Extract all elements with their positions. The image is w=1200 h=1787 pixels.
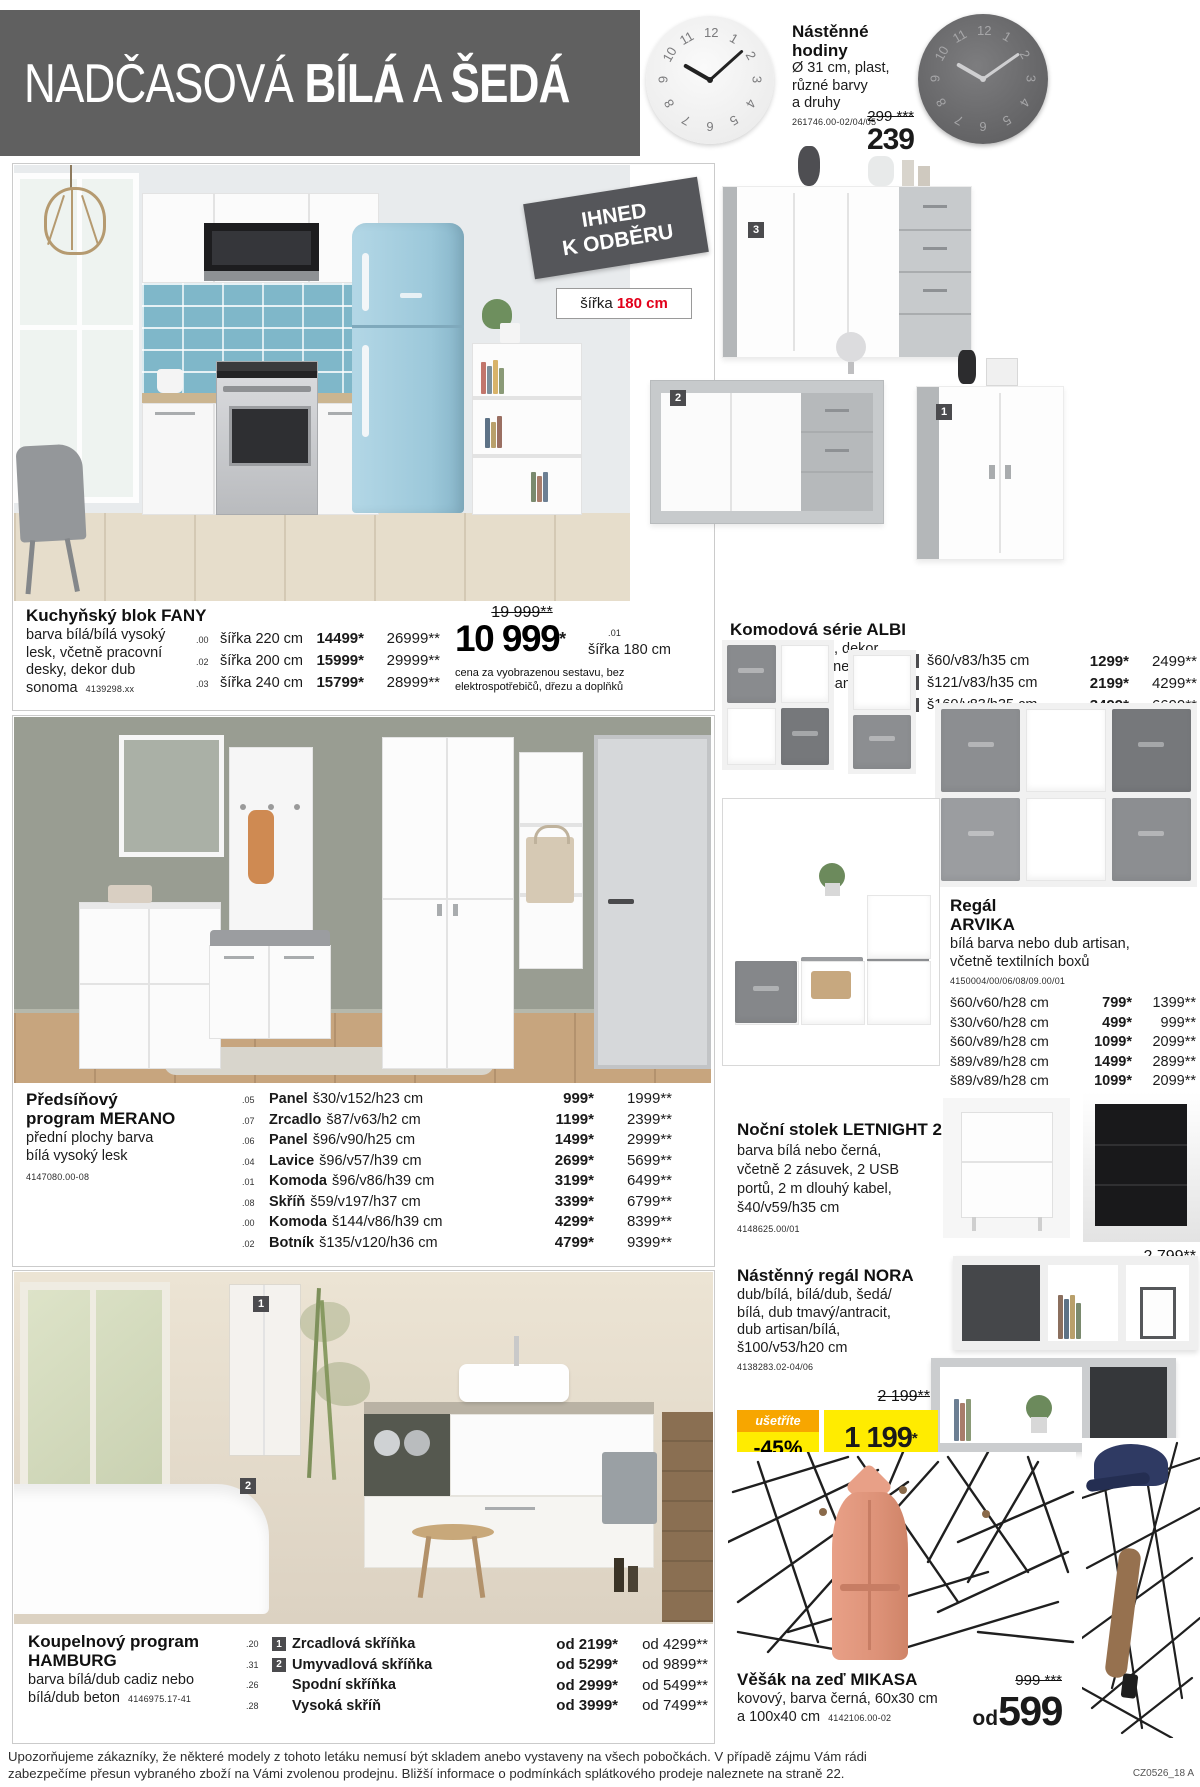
mikasa-old-price: 999 *** xyxy=(900,1672,1062,1689)
table-row: .07 Zrcadlo š87/v63/h2 cm 1199* 2399** xyxy=(242,1111,672,1132)
row-index: .01 xyxy=(242,1177,269,1187)
lamp-cord xyxy=(70,165,72,189)
floor xyxy=(14,513,630,601)
dark-clock-image: 123456789101112 xyxy=(918,14,1048,144)
row-item: Umyvadlová skříňka xyxy=(292,1657,538,1673)
fabric-box xyxy=(1112,798,1191,881)
wood-shelf-panel xyxy=(662,1412,713,1622)
built-in-oven xyxy=(204,223,319,281)
table-row: .20 1 Zrcadlová skříňka od 2199* od 4299… xyxy=(246,1634,708,1655)
mikasa-photo xyxy=(728,1452,1076,1664)
table-row: .04 Lavice š96/v57/h39 cm 2699* 5699** xyxy=(242,1152,672,1173)
towel xyxy=(602,1452,657,1524)
kitchen-note-2: elektrospotřebičů, dřezu a doplňků xyxy=(455,680,705,694)
row-index: .05 xyxy=(242,1095,269,1105)
clock-numeral: 8 xyxy=(659,94,678,112)
hamburg-desc-2: bílá/dub beton 4146975.17-41 xyxy=(28,1690,194,1709)
mikasa-side-photo xyxy=(1082,1438,1200,1738)
row-ref-price: 4299** xyxy=(1129,675,1197,692)
title-word-4: ŠEDÁ xyxy=(451,52,570,114)
mikasa-price-block: 999 *** od599 xyxy=(900,1672,1062,1732)
clock-numeral: 1 xyxy=(725,29,743,48)
nora-name: Nástěnný regál NORA xyxy=(737,1266,914,1285)
clock-numeral: 7 xyxy=(677,111,695,130)
letnight-desc-2: včetně 2 zásuvek, 2 USB xyxy=(737,1161,899,1180)
nora-desc-1: dub/bílá, bílá/dub, šedá/ xyxy=(737,1287,892,1305)
row-item: Spodní skříňka xyxy=(292,1677,538,1693)
table-row: .02 Botník š135/v120/h36 cm 4799* 9399** xyxy=(242,1234,672,1255)
arvika-desc-1: bílá barva nebo dub artisan, xyxy=(950,936,1130,954)
arvika-shelf-a-image xyxy=(722,640,834,770)
price-star: * xyxy=(559,629,566,649)
hamburg-desc-1: barva bílá/dub cadiz nebo xyxy=(28,1672,194,1690)
row-index: .31 xyxy=(246,1660,272,1670)
towels xyxy=(108,885,152,903)
row-ref-price: od 7499** xyxy=(618,1697,708,1714)
row-index: .20 xyxy=(246,1639,272,1649)
table-row: š60/v60/h28 cm 799* 1399** xyxy=(950,994,1196,1014)
kitchen-table: .00 šířka 220 cm 14499* 26999** .02 šířk… xyxy=(196,630,440,696)
row-price: 15799* xyxy=(304,674,364,691)
merano-desc-2: bílá vysoký lesk xyxy=(26,1148,153,1166)
fabric-box xyxy=(727,645,776,703)
box-decor xyxy=(986,358,1018,386)
hamburg-code: 4146975.17-41 xyxy=(128,1694,191,1704)
row-index: .06 xyxy=(242,1136,269,1146)
row-item: Lavice xyxy=(269,1153,314,1169)
row-price: 2199* xyxy=(1073,675,1129,692)
stool-top xyxy=(412,1524,494,1540)
fabric-box xyxy=(853,715,911,770)
row-price: od 2999* xyxy=(538,1677,618,1694)
row-ref-price: 28999** xyxy=(364,674,440,691)
open-rack xyxy=(519,752,583,969)
table-row: .31 2 Umyvadlová skříňka od 5299* od 989… xyxy=(246,1655,708,1676)
books xyxy=(485,416,503,453)
clock-numeral: 7 xyxy=(950,111,968,130)
footer-disclaimer: Upozorňujeme zákazníky, že některé model… xyxy=(8,1748,1118,1782)
table-row: š30/v60/h28 cm 499* 999** xyxy=(950,1014,1196,1034)
clock-numeral: 3 xyxy=(750,74,765,86)
nora-desc: dub/bílá, bílá/dub, šedá/ bílá, dub tmav… xyxy=(737,1287,892,1357)
row-index: .07 xyxy=(242,1116,269,1126)
nora-old-price: 2 199** xyxy=(770,1388,930,1406)
table-row: .03 šířka 240 cm 15799* 28999** xyxy=(196,674,440,696)
shoe-cabinet xyxy=(79,902,221,1069)
arvika-desc: bílá barva nebo dub artisan, včetně text… xyxy=(950,936,1130,971)
row-dimension: š60/v89/h28 cm xyxy=(950,1033,1080,1049)
clock-center xyxy=(707,77,713,83)
kitchen-desc-1: barva bílá/bílá vysoký xyxy=(26,627,165,645)
shelf-cell xyxy=(727,708,776,766)
merano-name: Předsíňový program MERANO xyxy=(26,1090,175,1128)
nora-price: 1 199 xyxy=(844,1422,912,1455)
row-ref-price: od 9899** xyxy=(618,1656,708,1673)
kitchen-note-1: cena za vyobrazenou sestavu, bez xyxy=(455,666,705,680)
tote-bag xyxy=(526,837,574,903)
row-price: od 3999* xyxy=(538,1697,618,1714)
jug-decor xyxy=(868,156,894,186)
candle-decor xyxy=(918,166,930,186)
books xyxy=(954,1399,972,1446)
clock-numeral: 12 xyxy=(704,25,716,40)
nora-desc-2: bílá, dub tmavý/antracit, xyxy=(737,1305,892,1323)
nora-shelf-1-image xyxy=(953,1256,1198,1350)
row-ref-price: 9399** xyxy=(594,1234,672,1251)
table-row: 1 š60/v83/h35 cm 1299* 2499** xyxy=(905,650,1197,672)
row-item: Skříň xyxy=(269,1194,305,1210)
row-price: 4299* xyxy=(534,1213,594,1230)
row-index: .02 xyxy=(242,1239,269,1249)
picture-frame xyxy=(1140,1287,1176,1339)
table-row: .06 Panel š96/v90/h25 cm 1499* 2999** xyxy=(242,1131,672,1152)
row-dimension: š96/v90/h25 cm xyxy=(313,1132,534,1148)
merano-name-1: Předsíňový xyxy=(26,1090,175,1109)
kitchen-desc-4-text: sonoma xyxy=(26,680,78,696)
footer-line-2: zabezpečíme přesun vybraného zboží na Vá… xyxy=(8,1765,1118,1782)
title-word-2: BÍLÁ xyxy=(305,52,404,114)
row-item: Zrcadlo xyxy=(269,1112,321,1128)
bamboo-leaves xyxy=(314,1362,370,1406)
row-price: 1099* xyxy=(1080,1034,1132,1050)
books xyxy=(481,360,505,399)
letnight-desc: barva bílá nebo černá, včetně 2 zásuvek,… xyxy=(737,1142,899,1218)
plant-pot xyxy=(500,323,520,343)
footer-page-code: CZ0526_18 A xyxy=(1120,1768,1194,1779)
shelf-cell xyxy=(1026,798,1105,881)
letnight-desc-4: š40/v59/h35 cm xyxy=(737,1199,899,1218)
row-index: .08 xyxy=(242,1198,269,1208)
row-ref-price: 2399** xyxy=(594,1111,672,1128)
row-dimension: š30/v152/h23 cm xyxy=(313,1091,534,1107)
mikasa-name: Věšák na zeď MIKASA xyxy=(737,1670,917,1689)
nora-desc-3: dub artisan/bílá, xyxy=(737,1322,892,1340)
shelf-cell xyxy=(781,645,830,703)
table-row: š60/v89/h28 cm 1099* 2099** xyxy=(950,1033,1196,1053)
row-dimension: š96/v57/h39 cm xyxy=(319,1153,534,1169)
row-item: Zrcadlová skříňka xyxy=(292,1636,538,1652)
row-ref-price: 2999** xyxy=(594,1131,672,1148)
arvika-step-shelf-image xyxy=(722,798,940,1066)
kitchen-price-block: 10 999* xyxy=(455,620,566,657)
fabric-box xyxy=(941,798,1020,881)
door xyxy=(594,735,711,1069)
mirror xyxy=(119,735,224,857)
white-nightstand xyxy=(961,1112,1053,1218)
table-row: .01 Komoda š96/v86/h39 cm 3199* 6499** xyxy=(242,1172,672,1193)
row-index: .02 xyxy=(196,657,220,667)
door-handle xyxy=(608,899,634,904)
fabric-box xyxy=(781,708,830,766)
kitchen-desc-3: desky, dekor dub xyxy=(26,662,165,680)
row-index: .26 xyxy=(246,1680,272,1690)
mikasa-price-prefix: od xyxy=(972,1707,998,1730)
row-ref-price: 26999** xyxy=(364,630,440,647)
shelf-cell xyxy=(867,895,931,959)
clock-numeral: 4 xyxy=(1015,94,1034,112)
lamp-stem xyxy=(848,362,854,374)
merano-table: .05 Panel š30/v152/h23 cm 999* 1999** .0… xyxy=(242,1090,672,1254)
clock-numeral: 11 xyxy=(677,29,695,48)
arvika-name-1: Regál xyxy=(950,896,1015,915)
arvika-shelf-b-image xyxy=(848,650,916,774)
row-ref-price: 2099** xyxy=(1132,1073,1196,1089)
bamboo-leaves xyxy=(300,1302,350,1342)
black-nightstand xyxy=(1095,1104,1187,1226)
roller-tip xyxy=(1121,1673,1139,1699)
arvika-name: Regál ARVIKA xyxy=(950,896,1015,934)
table-row: .00 šířka 220 cm 14499* 26999** xyxy=(196,630,440,652)
row-dimension: š60/v60/h28 cm xyxy=(950,994,1080,1010)
row-dimension: šířka 200 cm xyxy=(220,653,304,669)
nora-desc-4: š100/v53/h20 cm xyxy=(737,1340,892,1358)
row-ref-price: 29999** xyxy=(364,652,440,669)
hamburg-photo xyxy=(14,1272,713,1624)
basket xyxy=(811,971,851,999)
pendant-lamp xyxy=(44,187,106,255)
merano-name-2: program MERANO xyxy=(26,1109,175,1128)
clock-numeral: 11 xyxy=(950,27,968,46)
hamburg-desc-2-text: bílá/dub beton xyxy=(28,1690,120,1706)
row-dimension: šířka 220 cm xyxy=(220,631,304,647)
lamp-decor xyxy=(836,332,866,362)
stove xyxy=(216,361,318,515)
vessel-sink xyxy=(459,1364,569,1402)
tall-wardrobe xyxy=(382,737,514,1069)
table-row: 2 š121/v83/h35 cm 2199* 4299** xyxy=(905,672,1197,694)
mikasa-price: 599 xyxy=(998,1688,1062,1734)
mikasa-code: 4142106.00-02 xyxy=(828,1713,891,1723)
robe xyxy=(832,1492,908,1660)
row-item: Vysoká skříň xyxy=(292,1698,538,1714)
minute-hand xyxy=(709,49,744,81)
row-price: 2699* xyxy=(534,1152,594,1169)
row-price: 1099* xyxy=(1080,1073,1132,1089)
scarf xyxy=(248,810,274,884)
hamburg-name: Koupelnový program HAMBURG xyxy=(28,1632,199,1670)
letnight-desc-1: barva bílá nebo černá, xyxy=(737,1142,899,1161)
width-prefix: šířka xyxy=(580,295,613,312)
window xyxy=(20,1282,170,1517)
mikasa-desc-2-text: a 100x40 cm xyxy=(737,1709,820,1725)
hamburg-table: .20 1 Zrcadlová skříňka od 2199* od 4299… xyxy=(246,1634,708,1716)
merano-code: 4147080.00-08 xyxy=(26,1172,89,1182)
white-clock-image: 123456789101112 xyxy=(646,16,774,144)
clock-numeral: 6 xyxy=(704,119,716,134)
row-ref-price: 8399** xyxy=(594,1213,672,1230)
minute-hand xyxy=(982,53,1020,81)
kettle xyxy=(157,369,183,393)
row-price: 4799* xyxy=(534,1234,594,1251)
faucet xyxy=(514,1336,519,1366)
row-item: Panel xyxy=(269,1132,308,1148)
row-price: 799* xyxy=(1080,995,1132,1011)
kitchen-desc-4: sonoma 4139298.xx xyxy=(26,680,165,699)
row-price: 3199* xyxy=(534,1172,594,1189)
row-index: .04 xyxy=(242,1157,269,1167)
kitchen-desc: barva bílá/bílá vysoký lesk, včetně prac… xyxy=(26,627,165,698)
clock-numeral: 10 xyxy=(932,45,951,63)
item-marker-1: 1 xyxy=(936,404,952,420)
albi-name: Komodová série ALBI xyxy=(730,620,906,639)
table-row: .05 Panel š30/v152/h23 cm 999* 1999** xyxy=(242,1090,672,1111)
title-word-1: NADČASOVÁ xyxy=(24,52,293,114)
width-label: šířka 180 cm xyxy=(556,288,692,319)
row-price: 499* xyxy=(1080,1015,1132,1031)
vase-decor xyxy=(798,146,820,186)
clock-numeral: 1 xyxy=(998,27,1016,46)
fabric-box xyxy=(735,961,797,1023)
clock-numeral: 9 xyxy=(927,73,942,85)
item-marker-2: 2 xyxy=(670,390,686,406)
row-ref-price: 6499** xyxy=(594,1172,672,1189)
bench-cushion xyxy=(210,930,330,946)
merano-desc: přední plochy barva bílá vysoký lesk xyxy=(26,1130,153,1165)
shelf-cell xyxy=(1026,709,1105,792)
row-ref-price: 1399** xyxy=(1132,995,1196,1011)
clock-name: Nástěnné hodiny xyxy=(792,22,917,60)
bottle-decor xyxy=(628,1566,638,1592)
page-title: NADČASOVÁ BÍLÁ A ŠEDÁ xyxy=(0,51,570,115)
row-index: .00 xyxy=(242,1218,269,1228)
clock-numeral: 4 xyxy=(742,94,761,112)
dark-compartment xyxy=(962,1265,1040,1341)
letnight-desc-3: portů, 2 m dlouhý kabel, xyxy=(737,1180,899,1199)
row-dimension: š89/v89/h28 cm xyxy=(950,1053,1080,1069)
row-price: 14499* xyxy=(304,630,364,647)
row-dimension: š59/v197/h37 cm xyxy=(310,1194,534,1210)
plant-pot xyxy=(1031,1417,1047,1433)
clock-numeral: 2 xyxy=(742,47,761,65)
price-star: * xyxy=(912,1430,918,1447)
table-row: .00 Komoda š144/v86/h39 cm 4299* 8399** xyxy=(242,1213,672,1234)
clock-numeral: 12 xyxy=(977,23,989,38)
kitchen-note: cena za vyobrazenou sestavu, bez elektro… xyxy=(455,666,705,694)
hamburg-desc: barva bílá/dub cadiz nebo bílá/dub beton… xyxy=(28,1672,194,1708)
bottle-decor xyxy=(614,1558,624,1592)
row-price: 1299* xyxy=(1073,653,1129,670)
clock-numeral: 9 xyxy=(655,74,670,86)
fabric-box xyxy=(941,709,1020,792)
table-row: .08 Skříň š59/v197/h37 cm 3399* 6799** xyxy=(242,1193,672,1214)
table-row: š89/v89/h28 cm 1499* 2899** xyxy=(950,1053,1196,1073)
row-item: Panel xyxy=(269,1091,308,1107)
kitchen-price-dim: šířka 180 cm xyxy=(588,642,698,660)
coat-panel xyxy=(229,747,313,939)
merano-photo xyxy=(14,717,711,1083)
row-ref-price: od 5499** xyxy=(618,1677,708,1694)
item-marker-2: 2 xyxy=(240,1478,256,1494)
shelf-unit xyxy=(472,343,582,515)
black-vase-decor xyxy=(958,350,976,384)
row-price: 3399* xyxy=(534,1193,594,1210)
row-ref-price: 2099** xyxy=(1132,1034,1196,1050)
kitchen-desc-2: lesk, včetně pracovní xyxy=(26,645,165,663)
arvika-shelf-c-image xyxy=(935,703,1197,887)
arvika-table: š60/v60/h28 cm 799* 1399** š30/v60/h28 c… xyxy=(950,994,1196,1092)
clock-center xyxy=(980,76,986,82)
row-item: Komoda xyxy=(269,1173,327,1189)
discount-label: ušetříte xyxy=(737,1410,819,1432)
row-ref-price: 1999** xyxy=(594,1090,672,1107)
row-price: od 5299* xyxy=(538,1656,618,1673)
row-price: 1499* xyxy=(1080,1054,1132,1070)
row-ref-price: 5699** xyxy=(594,1152,672,1169)
row-dimension: š121/v83/h35 cm xyxy=(927,675,1073,691)
kitchen-price-idx: .01 xyxy=(608,628,621,638)
width-value: 180 cm xyxy=(617,295,668,312)
item-marker-1: 1 xyxy=(253,1296,269,1312)
row-dimension: š135/v120/h36 cm xyxy=(319,1235,534,1251)
shelf-cell xyxy=(867,961,931,1025)
table-row: .28 Vysoká skříň od 3999* od 7499** xyxy=(246,1696,708,1717)
row-dimension: š144/v86/h39 cm xyxy=(332,1214,534,1230)
row-price: od 2199* xyxy=(538,1636,618,1653)
row-index: .00 xyxy=(196,635,220,645)
row-ref-price: od 4299** xyxy=(618,1636,708,1653)
robe-belt xyxy=(840,1584,900,1591)
row-dimension: š30/v60/h28 cm xyxy=(950,1014,1080,1030)
row-ref-price: 2899** xyxy=(1132,1054,1196,1070)
clock-numeral: 3 xyxy=(1024,73,1039,85)
clock-numeral: 2 xyxy=(1015,45,1034,63)
row-ref-price: 2499** xyxy=(1129,653,1197,670)
row-index: .03 xyxy=(196,679,220,689)
fabric-box xyxy=(1112,709,1191,792)
header-banner: NADČASOVÁ BÍLÁ A ŠEDÁ xyxy=(0,10,640,156)
arvika-desc-2: včetně textilních boxů xyxy=(950,954,1130,972)
plant-pot xyxy=(825,883,840,896)
letnight-white-image xyxy=(943,1098,1070,1238)
merano-desc-1: přední plochy barva xyxy=(26,1130,153,1148)
bathtub xyxy=(14,1484,269,1614)
letnight-name: Noční stolek LETNIGHT 2 xyxy=(737,1120,942,1139)
dark-compartment xyxy=(1090,1367,1167,1443)
arvika-code: 4150004/00/06/08/09.00/01 xyxy=(950,976,1065,986)
letnight-code: 4148625.00/01 xyxy=(737,1224,800,1234)
row-item: Botník xyxy=(269,1235,314,1251)
books xyxy=(1058,1295,1082,1344)
row-dimension: š87/v63/h2 cm xyxy=(326,1112,534,1128)
clock-desc-1: Ø 31 cm, plast, xyxy=(792,60,917,78)
table-row: .26 Spodní skříňka od 2999* od 5499** xyxy=(246,1675,708,1696)
row-dimension: šířka 240 cm xyxy=(220,675,304,691)
hamburg-name-2: HAMBURG xyxy=(28,1651,199,1670)
kitchen-name: Kuchyňský blok FANY xyxy=(26,606,206,625)
row-price: 999* xyxy=(534,1090,594,1107)
table-row: .02 šířka 200 cm 15999* 29999** xyxy=(196,652,440,674)
letnight-black-image xyxy=(1083,1092,1200,1242)
title-word-3: A xyxy=(413,52,439,114)
table-row: š89/v89/h28 cm 1099* 2099** xyxy=(950,1072,1196,1092)
row-price: 15999* xyxy=(304,652,364,669)
clock-numeral: 5 xyxy=(998,111,1016,130)
row-price: 1199* xyxy=(534,1111,594,1128)
row-dimension: š96/v86/h39 cm xyxy=(332,1173,534,1189)
row-ref-price: 999** xyxy=(1132,1015,1196,1031)
nora-code: 4138283.02-04/06 xyxy=(737,1362,813,1372)
kitchen-price: 10 999 xyxy=(455,618,559,659)
row-marker: 2 xyxy=(272,1658,286,1672)
books xyxy=(531,472,549,507)
arvika-name-2: ARVIKA xyxy=(950,915,1015,934)
row-price: 1499* xyxy=(534,1131,594,1148)
clock-desc-2: různé barvy xyxy=(792,78,917,96)
row-ref-price: 6799** xyxy=(594,1193,672,1210)
row-marker: 1 xyxy=(272,1637,286,1651)
shelf-cell xyxy=(853,655,911,710)
kitchen-code: 4139298.xx xyxy=(86,684,135,694)
